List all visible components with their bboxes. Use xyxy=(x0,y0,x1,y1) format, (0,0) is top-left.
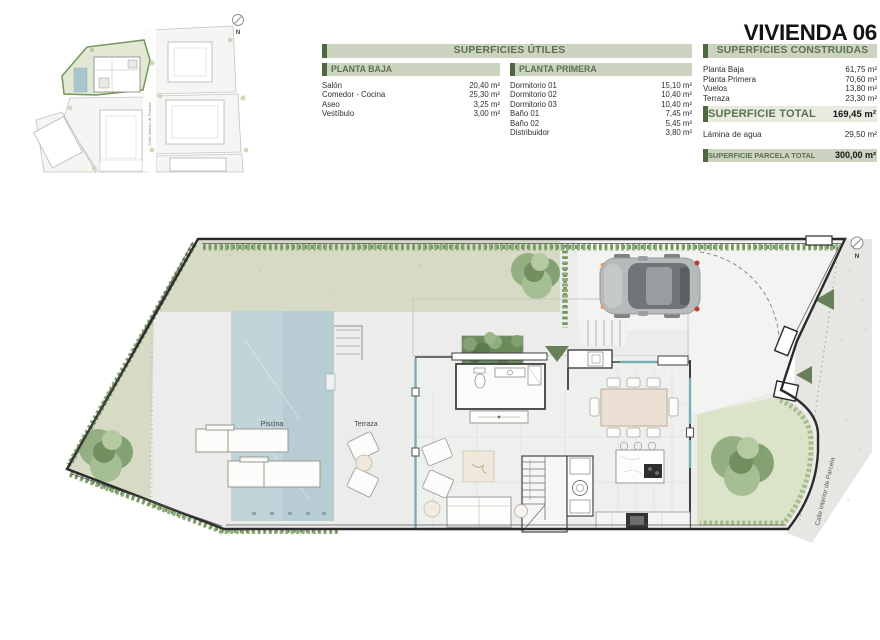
lamina-value: 29,50 m² xyxy=(845,130,877,139)
stairs xyxy=(522,456,567,532)
area-row: Baño 025,45 m² xyxy=(510,119,692,128)
area-label: Vuelos xyxy=(703,84,727,94)
area-label: Baño 01 xyxy=(510,109,539,118)
superficie-total-band: SUPERFICIE TOTAL 169,45 m² xyxy=(703,106,877,122)
area-label: Dormitorio 01 xyxy=(510,81,557,90)
lawn-top xyxy=(154,241,560,312)
area-label: Planta Primera xyxy=(703,75,756,85)
construidas-header-bar: SUPERFICIES CONSTRUIDAS xyxy=(703,44,877,58)
pouf xyxy=(424,501,440,517)
area-label: Dormitorio 02 xyxy=(510,90,557,99)
table-superficies-utiles: SUPERFICIES ÚTILES PLANTA BAJA Salón20,4… xyxy=(322,44,692,137)
planta-baja-column: PLANTA BAJA Salón20,40 m² Comedor - Coci… xyxy=(322,63,500,137)
kitchen-counter xyxy=(596,512,690,529)
area-row: Planta Baja61,75 m² xyxy=(703,65,877,75)
area-label: Comedor - Cocina xyxy=(322,90,385,99)
utiles-header-bar: SUPERFICIES ÚTILES xyxy=(322,44,692,58)
area-label: Aseo xyxy=(322,100,340,109)
area-row: Vestíbulo3,00 m² xyxy=(322,109,500,118)
area-value: 70,60 m² xyxy=(845,75,877,85)
car xyxy=(600,254,700,318)
lamina-label: Lámina de agua xyxy=(703,130,762,139)
area-value: 25,30 m² xyxy=(469,90,500,99)
site-highlighted-plot xyxy=(62,40,150,95)
site-plan: Calle Interior de Parcela N xyxy=(34,15,249,173)
area-value: 13,80 m² xyxy=(845,84,877,94)
parcela-total-band: SUPERFICIE PARCELA TOTAL 300,00 m² xyxy=(703,149,877,162)
side-table xyxy=(515,505,528,518)
area-row: Dormitorio 0310,40 m² xyxy=(510,100,692,109)
svg-text:N: N xyxy=(855,253,860,260)
area-label: Salón xyxy=(322,81,342,90)
page-title: VIVIENDA 06 xyxy=(600,20,877,46)
area-value: 10,40 m² xyxy=(661,90,692,99)
planta-primera-header-label: PLANTA PRIMERA xyxy=(519,65,597,74)
coffee-table-rug xyxy=(463,451,494,482)
area-row: Terraza23,30 m² xyxy=(703,94,877,104)
entry-steps xyxy=(580,320,627,346)
table-superficies-construidas: SUPERFICIES CONSTRUIDAS Planta Baja61,75… xyxy=(703,44,877,162)
area-value: 23,30 m² xyxy=(845,94,877,104)
area-row: Dormitorio 0115,10 m² xyxy=(510,81,692,90)
area-label: Baño 02 xyxy=(510,119,539,128)
area-label: Dormitorio 03 xyxy=(510,100,557,109)
total-value: 169,45 m² xyxy=(833,110,876,119)
utiles-header-label: SUPERFICIES ÚTILES xyxy=(454,46,566,55)
terrace-label: Terraza xyxy=(354,421,377,428)
area-row: Planta Primera70,60 m² xyxy=(703,75,877,85)
svg-text:N: N xyxy=(236,30,240,36)
planta-primera-column: PLANTA PRIMERA Dormitorio 0115,10 m² Dor… xyxy=(510,63,692,137)
area-row: Aseo3,25 m² xyxy=(322,100,500,109)
area-value: 5,45 m² xyxy=(666,119,692,128)
floorplan-sheet: Calle Interior de Parcela N xyxy=(0,0,880,640)
area-value: 3,80 m² xyxy=(666,128,692,137)
area-value: 61,75 m² xyxy=(845,65,877,75)
lamina-row: Lámina de agua 29,50 m² xyxy=(703,130,877,139)
parcela-value: 300,00 m² xyxy=(835,151,876,160)
area-row: Comedor - Cocina25,30 m² xyxy=(322,90,500,99)
sofa xyxy=(447,497,511,527)
site-street-label: Calle Interior de Parcela xyxy=(147,102,152,146)
area-value: 10,40 m² xyxy=(661,100,692,109)
planta-primera-header-bar: PLANTA PRIMERA xyxy=(510,63,692,76)
area-row: Dormitorio 0210,40 m² xyxy=(510,90,692,99)
area-value: 3,00 m² xyxy=(474,109,500,118)
area-value: 3,25 m² xyxy=(474,100,500,109)
pool-label: Piscina xyxy=(261,421,284,428)
planta-baja-header-label: PLANTA BAJA xyxy=(331,65,392,74)
area-value: 15,10 m² xyxy=(661,81,692,90)
area-label: Terraza xyxy=(703,94,730,104)
construidas-header-label: SUPERFICIES CONSTRUIDAS xyxy=(717,46,869,55)
pool: Piscina xyxy=(231,311,335,521)
area-row: Salón20,40 m² xyxy=(322,81,500,90)
area-row: Distribuidor3,80 m² xyxy=(510,128,692,137)
main-plan: Calle Interior de Parcela xyxy=(67,236,872,543)
site-north-compass-icon: N xyxy=(233,15,244,37)
utility-room xyxy=(567,456,593,516)
planta-baja-header-bar: PLANTA BAJA xyxy=(322,63,500,76)
area-label: Vestíbulo xyxy=(322,109,354,118)
area-row: Vuelos13,80 m² xyxy=(703,84,877,94)
area-label: Planta Baja xyxy=(703,65,744,75)
total-label: SUPERFICIE TOTAL xyxy=(708,110,816,119)
area-value: 20,40 m² xyxy=(469,81,500,90)
area-label: Distribuidor xyxy=(510,128,549,137)
parcela-label: SUPERFICIE PARCELA TOTAL xyxy=(708,151,815,160)
area-value: 7,45 m² xyxy=(666,109,692,118)
area-row: Baño 017,45 m² xyxy=(510,109,692,118)
